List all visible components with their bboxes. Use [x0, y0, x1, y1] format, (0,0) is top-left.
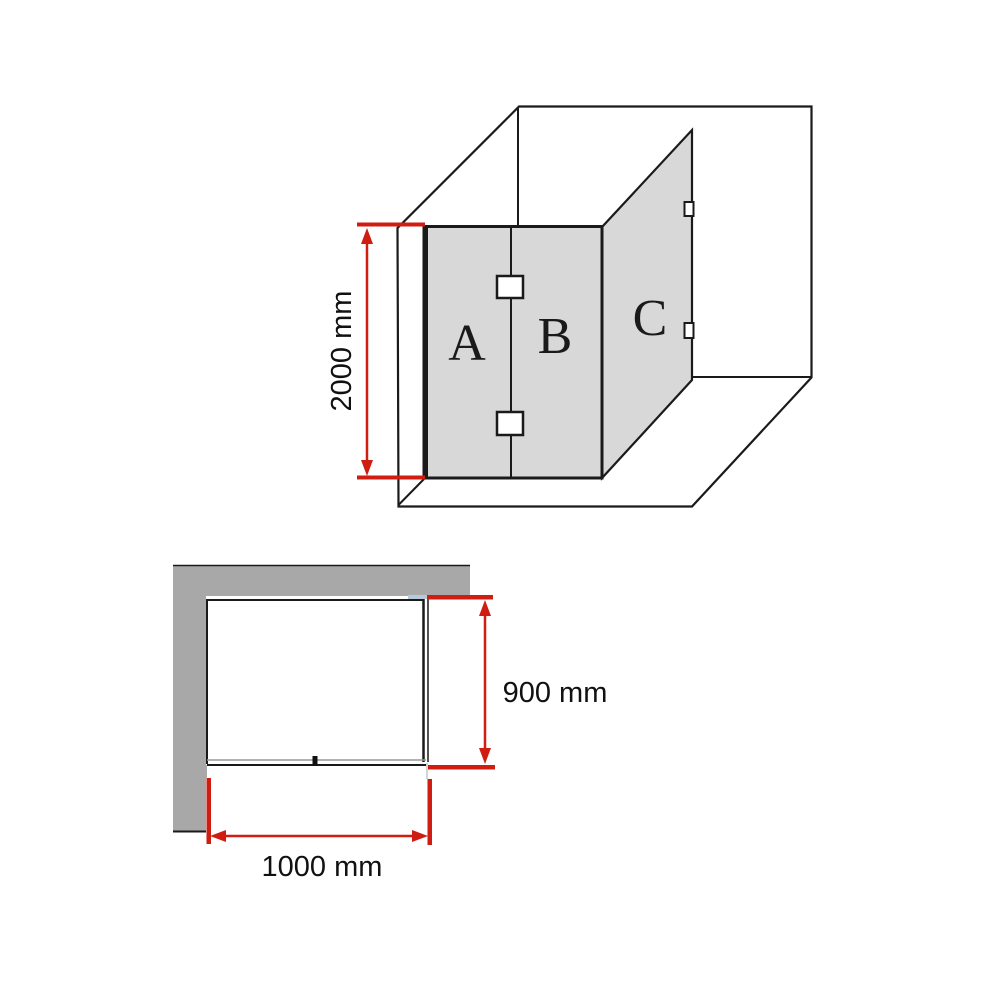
width-dim-arrow-left-icon	[210, 830, 226, 842]
wall-bracket-bottom-icon	[685, 323, 694, 338]
depth-dim-top-tick	[427, 595, 493, 600]
plan-hinge-tick	[313, 756, 318, 766]
depth-dimension: 900 mm	[427, 595, 607, 770]
shower-screen-diagram: A B C 2000 mm	[0, 0, 1000, 1000]
width-dim-label: 1000 mm	[262, 851, 383, 883]
panel-b-label: B	[538, 308, 573, 365]
plan-view: 900 mm 1000 mm	[173, 565, 607, 883]
height-dim-label: 2000 mm	[326, 291, 358, 412]
height-dim-bottom-tick	[357, 476, 425, 480]
width-dim-right-tick	[428, 779, 433, 845]
perspective-view: A B C 2000 mm	[326, 107, 812, 507]
height-dim-arrow-up-icon	[361, 228, 373, 244]
depth-dim-arrow-down-icon	[479, 748, 491, 764]
wall-bracket-top-icon	[685, 202, 694, 216]
height-dim-top-tick	[357, 223, 425, 227]
hinge-bottom-icon	[497, 412, 523, 435]
width-dimension: 1000 mm	[207, 778, 433, 883]
width-dim-left-tick	[207, 778, 212, 844]
wall-seam-highlight	[408, 595, 427, 599]
depth-dim-arrow-up-icon	[479, 600, 491, 616]
depth-dim-label: 900 mm	[503, 677, 608, 709]
shower-screen-diagram-page: A B C 2000 mm	[0, 0, 1000, 1000]
plan-wall-top	[173, 565, 470, 596]
depth-dim-bottom-tick	[428, 765, 495, 770]
height-dim-arrow-down-icon	[361, 460, 373, 476]
panel-a-label: A	[448, 315, 486, 372]
hinge-top-icon	[497, 276, 523, 298]
plan-wall-left	[173, 565, 206, 831]
width-dim-arrow-right-icon	[412, 830, 428, 842]
panel-c-label: C	[633, 290, 668, 347]
